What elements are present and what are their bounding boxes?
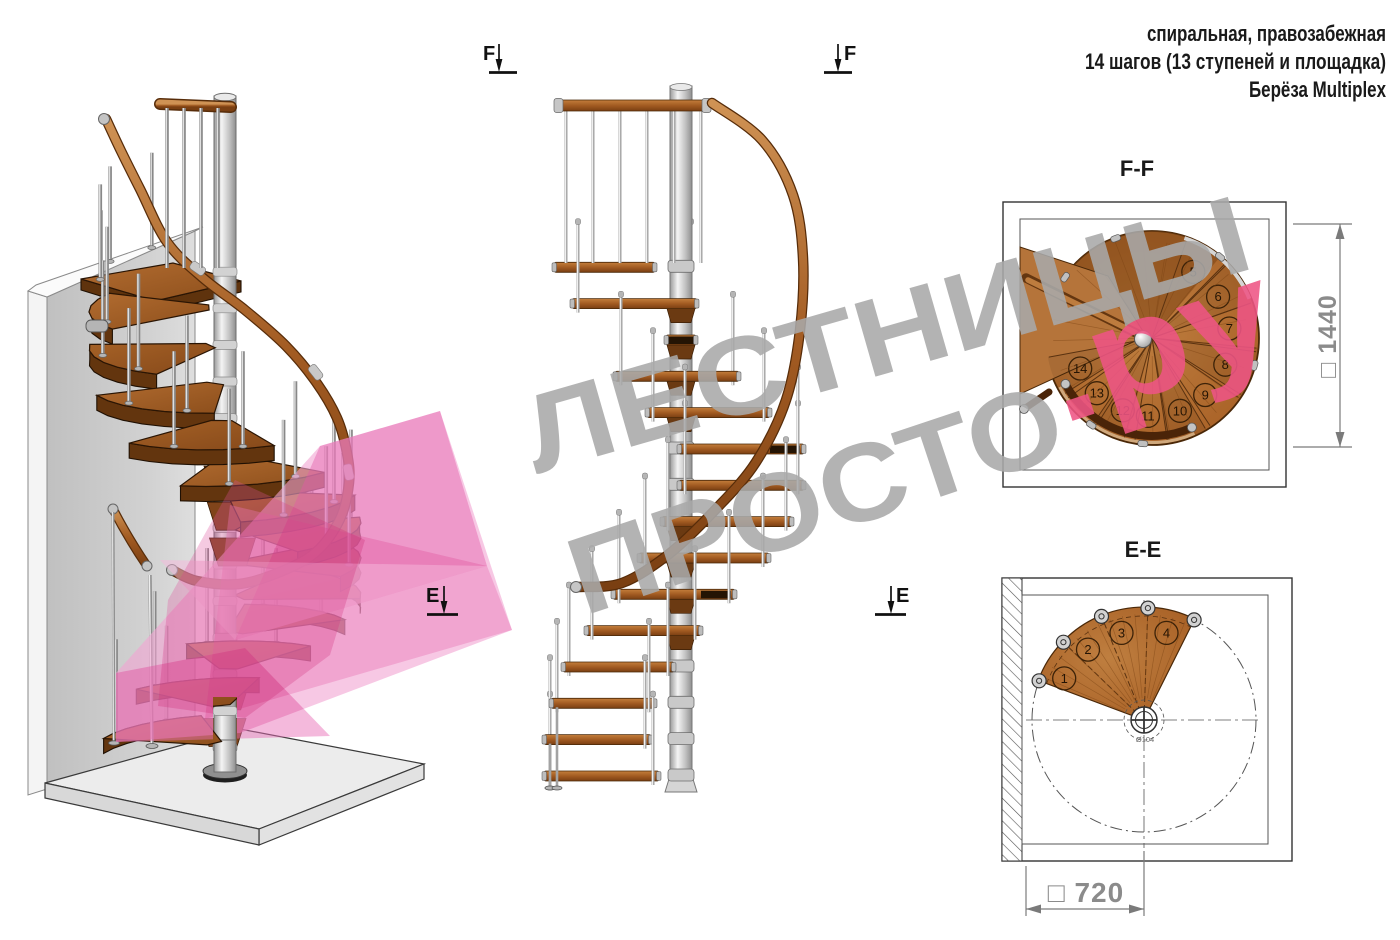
svg-text:спиральная, правозабежная: спиральная, правозабежная: [1147, 21, 1386, 46]
svg-text:E: E: [426, 585, 439, 607]
svg-text:Берёза Multiplex: Берёза Multiplex: [1249, 77, 1387, 102]
svg-text:□ 720: □ 720: [1048, 877, 1124, 908]
svg-text:14 шагов (13 ступеней и площад: 14 шагов (13 ступеней и площадка): [1085, 49, 1386, 74]
svg-text:Ø104: Ø104: [1136, 735, 1154, 744]
svg-text:1: 1: [1061, 671, 1068, 686]
svg-text:□ 1440: □ 1440: [1314, 294, 1342, 378]
svg-text:2: 2: [1084, 642, 1091, 657]
svg-text:4: 4: [1163, 625, 1170, 640]
svg-text:F: F: [483, 43, 495, 65]
svg-text:F-F: F-F: [1120, 156, 1154, 181]
svg-text:E-E: E-E: [1125, 537, 1162, 562]
svg-text:E: E: [896, 585, 909, 607]
svg-text:3: 3: [1118, 625, 1125, 640]
svg-text:F: F: [844, 43, 856, 65]
